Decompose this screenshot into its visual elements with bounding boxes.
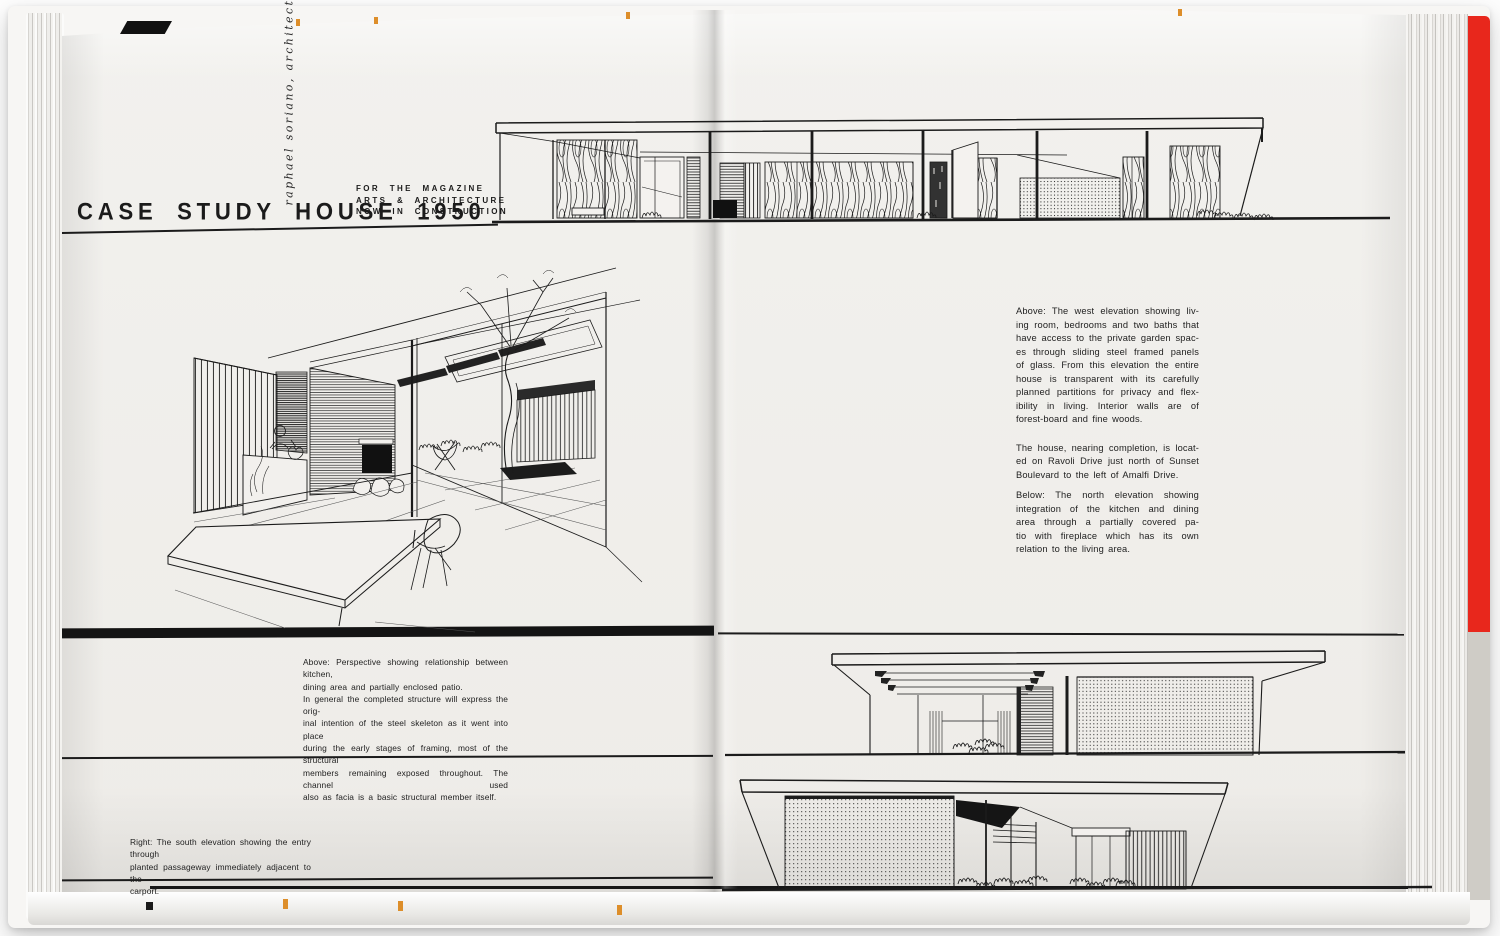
top-edge-black-tab <box>120 21 172 34</box>
caption-line: carport. <box>130 885 311 897</box>
caption-paragraph: The house, nearing completion, is locat-… <box>1016 442 1199 483</box>
bottom-edge-black-mark <box>146 902 153 910</box>
caption-line: of glass. From this elevation the entire <box>1016 359 1199 373</box>
page-stack-left-edge <box>26 13 64 919</box>
architect-credit-vertical: raphael soriano, architect <box>283 20 296 206</box>
caption-line: planted passageway immediately adjacent … <box>130 861 311 886</box>
caption-paragraph: Above: The west elevation showing liv-in… <box>1016 305 1199 427</box>
top-edge-orange-mark <box>374 17 378 24</box>
bottom-edge-orange-mark <box>617 905 622 915</box>
caption-line: Above: Perspective showing relationship … <box>303 656 508 681</box>
caption-line: dining area and partially enclosed patio… <box>303 681 508 693</box>
caption-line: ing room, bedrooms and two baths that <box>1016 319 1199 333</box>
red-cover-edge <box>1468 16 1490 632</box>
caption-line: In general the completed structure will … <box>303 693 508 718</box>
caption-paragraph: In general the completed structure will … <box>303 693 508 804</box>
caption-line: planned partitions for privacy and flex- <box>1016 386 1199 400</box>
caption-paragraph: Above: Perspective showing relationship … <box>303 656 508 693</box>
caption-line: house is transparent with its carefully <box>1016 373 1199 387</box>
north-elevation-drawing <box>725 643 1415 768</box>
caption-line: area through a partially covered pa- <box>1016 516 1199 530</box>
subtitle-line: FOR THE MAGAZINE <box>356 183 508 195</box>
caption-line: inal intention of the steel skeleton as … <box>303 717 508 742</box>
south-elevation-drawing <box>720 770 1438 892</box>
caption-line: es through sliding steel framed panels <box>1016 346 1199 360</box>
kitchen-perspective-drawing <box>145 230 645 632</box>
caption-line: also as facia is a basic structural memb… <box>303 791 508 803</box>
right-page-text-block: Above: The west elevation showing liv-in… <box>1016 305 1199 557</box>
caption-line: ed on Ravoli Drive just north of Sunset <box>1016 455 1199 469</box>
cover-edge-lower <box>1468 632 1490 900</box>
caption-line: have access to the private garden spac- <box>1016 332 1199 346</box>
bottom-edge-orange-mark <box>283 899 288 909</box>
south-elevation-caption: Right: The south elevation showing the e… <box>130 836 311 897</box>
caption-line: members remaining exposed throughout. Th… <box>303 767 508 792</box>
west-elevation-drawing <box>492 112 1397 234</box>
top-edge-orange-mark <box>626 12 630 19</box>
caption-line: Above: The west elevation showing liv- <box>1016 305 1199 319</box>
subtitle-line: ARTS & ARCHITECTURE <box>356 195 508 207</box>
caption-line: during the early stages of framing, most… <box>303 742 508 767</box>
caption-line: Below: The north elevation showing <box>1016 489 1199 503</box>
caption-line: Right: The south elevation showing the e… <box>130 836 311 861</box>
caption-line: integration of the kitchen and dining <box>1016 503 1199 517</box>
page-subtitle: FOR THE MAGAZINE ARTS & ARCHITECTURE NOW… <box>356 183 508 218</box>
caption-line: forest-board and fine woods. <box>1016 413 1199 427</box>
caption-line: The house, nearing completion, is locat- <box>1016 442 1199 456</box>
subtitle-line: NOW IN CONSTRUCTION <box>356 206 508 218</box>
caption-line: ibility in living. Interior walls are of <box>1016 400 1199 414</box>
caption-line: relation to the living area. <box>1016 543 1199 557</box>
perspective-caption: Above: Perspective showing relationship … <box>303 656 508 804</box>
top-edge-orange-mark <box>1178 9 1182 16</box>
caption-line: tio with fireplace which has its own <box>1016 530 1199 544</box>
bottom-edge-orange-mark <box>398 901 403 911</box>
caption-line: Boulevard to the left of Amalfi Drive. <box>1016 469 1199 483</box>
top-edge-orange-mark <box>296 19 300 26</box>
caption-paragraph: Right: The south elevation showing the e… <box>130 836 311 897</box>
caption-paragraph: Below: The north elevation showingintegr… <box>1016 489 1199 557</box>
book-photo: raphael soriano, architect CASE STUDY HO… <box>0 0 1500 936</box>
